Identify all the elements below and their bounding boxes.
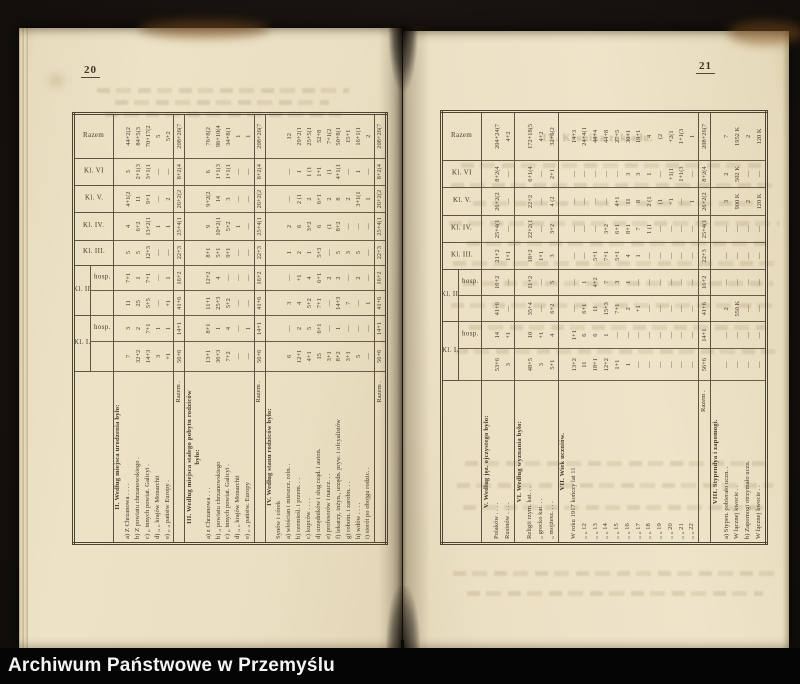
value-cell: — — [655, 269, 666, 295]
value-cell: +1 — [666, 188, 677, 215]
value-cell: — — [569, 269, 580, 295]
value-cell: — — [677, 243, 688, 269]
value-cell: — — [666, 296, 677, 322]
row-label: c) „ innych powiat. Galicyi . — [224, 372, 234, 544]
value-cell: 4+1(1 — [334, 158, 344, 185]
value-cell: — — [677, 296, 688, 322]
value-cell: — — [580, 160, 591, 187]
empty-cell — [265, 341, 275, 371]
value-cell: 6 — [314, 213, 324, 240]
value-cell: 8 — [633, 188, 644, 215]
value-cell: 70+17(2 — [143, 114, 153, 159]
value-cell: 7+1 — [123, 265, 133, 290]
value-cell: — — [743, 322, 754, 348]
empty-cell — [711, 215, 722, 242]
value-cell: 208+26(7 — [374, 114, 386, 159]
table-row: Razem .56+614+141+616+222+325+4(126+2(28… — [254, 114, 265, 544]
value-cell: 1 — [284, 240, 294, 265]
value-cell: — — [666, 269, 677, 295]
value-cell: 5 — [133, 240, 143, 265]
column-header-label: Razem — [83, 133, 104, 140]
value-cell: — — [754, 322, 767, 348]
column-header-label: Kl. VI — [84, 168, 104, 175]
value-cell: 27+5 — [612, 112, 623, 161]
value-cell: +1 — [163, 341, 173, 371]
value-cell: (1 — [324, 213, 334, 240]
bleed-through-line — [115, 100, 329, 105]
book-page-left: 20 Kl. I.Kl. II.Kl. III.Kl. IV.Kl. V.Kl.… — [19, 28, 402, 648]
value-cell: 26+2(2 — [492, 188, 503, 215]
class-column-header: Razem — [442, 112, 482, 161]
value-cell: +1 — [294, 265, 304, 290]
value-cell: — — [754, 243, 767, 269]
empty-cell — [482, 348, 493, 381]
column-header-label: Kl. IV. — [83, 223, 104, 230]
value-cell — [275, 240, 284, 265]
value-cell: 5 — [354, 341, 364, 371]
value-cell: 1 — [163, 265, 173, 290]
empty-cell — [482, 215, 493, 242]
empty-cell — [185, 341, 204, 371]
empty-cell — [114, 240, 124, 265]
value-cell: 41+6 — [699, 296, 711, 322]
value-cell: — — [569, 160, 580, 187]
section-title-row: VII. Wiek uczniów. — [558, 112, 569, 544]
empty-cell — [185, 316, 204, 341]
value-cell: — — [721, 322, 732, 348]
value-cell: — — [536, 269, 547, 295]
value-cell: — — [677, 188, 688, 215]
section-title-row: II. Według miejsca urodzenia było: — [114, 114, 124, 544]
empty-cell — [711, 296, 722, 322]
value-cell: — — [580, 243, 591, 269]
value-cell: 35+4 — [525, 296, 536, 322]
section-title-row: VI. Według wyznania było: — [514, 112, 525, 544]
value-cell: — — [344, 316, 354, 341]
value-cell: 11+2 — [525, 269, 536, 295]
value-cell: (2 — [655, 112, 666, 161]
value-cell: — — [666, 322, 677, 348]
table-row: a) Stypen. pobierało uczn. .——2———327 — [721, 112, 732, 544]
value-cell: — — [503, 269, 514, 295]
value-cell: 1 — [687, 188, 698, 215]
value-cell: 1 — [294, 158, 304, 185]
value-cell: 14+3 — [334, 291, 344, 316]
table-row: e) „ „ państw. Europy—1——————1 — [244, 114, 254, 544]
value-cell: 2 — [743, 112, 754, 161]
empty-cell — [482, 296, 493, 322]
bleed-through-line — [97, 88, 349, 93]
value-cell: 12+1 — [294, 341, 304, 371]
value-cell: — — [569, 188, 580, 215]
column-header-label: Kl. II. — [443, 292, 458, 299]
value-cell: 25+4(1 — [174, 213, 185, 240]
value-cell: 18+1 — [590, 348, 601, 381]
value-cell: — — [234, 316, 244, 341]
table-row: g) robotn. i zarobn. . .3+1—7—3—2—15+1 — [344, 114, 354, 544]
table-row: Religii rzym. kat. . .48+51035+411+218+2… — [525, 112, 536, 544]
value-cell: — — [503, 215, 514, 242]
value-cell: 44+2(2 — [123, 114, 133, 159]
value-cell: — — [677, 269, 688, 295]
column-header-textwrap: Kl. IV. — [444, 216, 481, 242]
row-label: d) urzędników i sług rząd. i auton. — [314, 372, 324, 544]
value-cell: — — [601, 188, 612, 215]
value-cell: 4+2 — [503, 112, 514, 161]
value-cell: 1 — [214, 316, 224, 341]
value-cell: 26+2(2 — [374, 185, 386, 212]
section-title: III. Według miejsca stałego pobytu rodzi… — [185, 372, 204, 544]
section-title: II. Według miejsca urodzenia było: — [114, 372, 124, 544]
value-cell: 22+2 — [525, 188, 536, 215]
row-label: „ mojżesz. . . . — [547, 381, 558, 544]
value-cell: — — [612, 322, 623, 348]
value-cell: — — [284, 185, 294, 212]
value-cell: — — [677, 348, 688, 381]
table-row: „ „ 17——+1—178319+1 — [633, 112, 644, 544]
value-cell: 8+1 — [204, 240, 214, 265]
value-cell: 204+24(7 — [492, 112, 503, 161]
stain-decor — [139, 20, 269, 38]
column-header-textwrap: Kl. I. — [443, 322, 458, 380]
row-label: Rusinów . . . . — [503, 381, 514, 544]
empty-cell — [265, 240, 275, 265]
row-label: „ „ 22 — [687, 381, 698, 544]
value-cell: — — [536, 296, 547, 322]
value-cell: 16+2 — [174, 265, 185, 290]
column-header-textwrap — [92, 291, 112, 315]
value-cell: 4 — [644, 112, 655, 161]
value-cell: — — [754, 269, 767, 295]
value-cell: 1 — [580, 269, 591, 295]
empty-cell — [482, 243, 493, 269]
section-title-line: VIII. Stypendya i zapomogi. — [712, 381, 721, 542]
row-label: d) „ „ krajów Monarchii — [153, 372, 163, 544]
column-header-textwrap: Kl. III. — [76, 241, 113, 265]
value-cell: 2 — [623, 296, 634, 322]
value-cell: 3 — [123, 158, 133, 185]
value-cell: — — [666, 348, 677, 381]
value-cell: 5+1 — [590, 243, 601, 269]
value-cell: 2 — [284, 213, 294, 240]
value-cell: — — [354, 316, 364, 341]
section-title-row: V. Według jęz. ojczystego było: — [482, 112, 493, 544]
value-cell: — — [153, 265, 163, 290]
empty-cell — [514, 348, 525, 381]
value-cell: — — [590, 160, 601, 187]
row-label: b) Z powiatu chrzanowskiego . — [133, 372, 143, 544]
value-cell: 8+1 — [204, 316, 214, 341]
column-header-textwrap: Razem — [76, 115, 113, 158]
value-cell: — — [677, 215, 688, 242]
empty-cell — [558, 215, 569, 242]
value-cell: — — [666, 243, 677, 269]
value-cell: — — [364, 341, 374, 371]
empty-cell — [711, 160, 722, 187]
value-cell: 1 — [334, 316, 344, 341]
value-cell: 5 — [153, 114, 163, 159]
value-cell: 22+3 — [254, 240, 265, 265]
table-row: Razem .56+614+141+616+222+325+4(126+2(28… — [174, 114, 185, 544]
value-cell: — — [284, 316, 294, 341]
value-cell: — — [153, 185, 163, 212]
empty-cell — [185, 158, 204, 185]
value-cell: 3 — [633, 160, 644, 187]
value-cell: +1 — [163, 291, 173, 316]
value-cell: 52+8 — [314, 114, 324, 159]
value-cell: 4+1 — [304, 341, 314, 371]
section-title-line: IV. Według stanu rodziców było: — [266, 372, 275, 542]
bleed-through-line — [453, 571, 777, 576]
empty-cell — [114, 316, 124, 341]
class-subcolumn-header: hosp. — [91, 316, 114, 341]
empty-cell — [558, 322, 569, 348]
empty-cell — [711, 322, 722, 348]
value-cell: 6+2 — [133, 213, 143, 240]
row-label: „ „ 20 — [666, 381, 677, 544]
value-cell: — — [743, 269, 754, 295]
value-cell: — — [244, 265, 254, 290]
value-cell: — — [364, 316, 374, 341]
value-cell: 4 (2 — [547, 188, 558, 215]
column-header-label: hosp. — [462, 279, 479, 286]
empty-cell — [482, 269, 493, 295]
stub-header — [442, 381, 482, 544]
value-cell: 25+4(1 — [254, 213, 265, 240]
value-cell: 1+1(3 — [214, 158, 224, 185]
table-row: d) „ „ krajów Monarchii—————1——1 — [234, 114, 244, 544]
value-cell: 56+6 — [174, 341, 185, 371]
value-cell: — — [743, 160, 754, 187]
table-row: „ mojżesz. . . .5+146+2533+24 (22+132+6(… — [547, 112, 558, 544]
stain-decor — [728, 21, 800, 45]
value-cell: 9+2(2 — [204, 185, 214, 212]
row-label: c) kupców . . . . — [304, 372, 314, 544]
value-cell: 1 — [644, 160, 655, 187]
column-header-textwrap: Kl. IV. — [76, 213, 113, 239]
value-cell: 24+4(1 — [580, 112, 591, 161]
table-row: „ „ 151+1—7+135+16+14+1—27+5 — [612, 112, 623, 544]
empty-cell — [558, 112, 569, 161]
value-cell: 8+2(4 — [174, 158, 185, 185]
empty-cell — [482, 188, 493, 215]
column-header-textwrap — [460, 349, 480, 381]
value-cell: — — [655, 348, 666, 381]
value-cell: 41+6 — [174, 291, 185, 316]
value-cell: 8+2(4 — [492, 160, 503, 187]
empty-cell — [558, 243, 569, 269]
value-cell: — — [644, 296, 655, 322]
class-subcolumn-header — [91, 341, 114, 371]
value-cell: — — [234, 158, 244, 185]
value-cell: 56+6 — [254, 341, 265, 371]
value-cell: 14 — [492, 322, 503, 348]
value-cell: — — [234, 240, 244, 265]
row-label: Polaków . . . . — [492, 381, 503, 544]
column-header-textwrap: Razem — [444, 113, 481, 160]
value-cell: 4 — [224, 316, 234, 341]
value-cell: 11 — [580, 348, 591, 381]
column-header-label: Kl. V. — [453, 198, 471, 205]
row-label: e) „ „ państw Europy . — [163, 372, 173, 544]
value-cell: 15+3 — [601, 296, 612, 322]
value-cell: 3+1 — [344, 341, 354, 371]
value-cell: 7+1 — [143, 316, 153, 341]
value-cell: 26+2(2 — [174, 185, 185, 212]
row-label: Religii rzym. kat. . . — [525, 381, 536, 544]
section-title-line: VII. Wiek uczniów. — [559, 381, 568, 542]
value-cell — [275, 158, 284, 185]
value-cell: 44+4 — [590, 112, 601, 161]
value-cell: — — [344, 213, 354, 240]
row-label: Razem . — [174, 372, 185, 544]
value-cell: 2 — [364, 114, 374, 159]
value-cell: — — [244, 158, 254, 185]
value-cell: 50+8(1 — [334, 114, 344, 159]
empty-cell — [482, 322, 493, 348]
value-cell: — — [503, 296, 514, 322]
value-cell — [275, 114, 284, 159]
value-cell: — — [364, 265, 374, 290]
value-cell: — — [153, 291, 163, 316]
empty-cell — [265, 185, 275, 212]
value-cell: 16+1(1 — [354, 114, 364, 159]
value-cell: 1 — [153, 213, 163, 240]
value-cell: 9 — [204, 213, 214, 240]
value-cell: 1+1 — [569, 322, 580, 348]
value-cell: 5 — [123, 240, 133, 265]
value-cell: 21+2 — [492, 243, 503, 269]
table-row: a) Z Chrzanowa . . . .73117+1544+1(2344+… — [123, 114, 133, 544]
value-cell: 13+2(1 — [143, 213, 153, 240]
section-title-line: II. Według miejsca urodzenia było: — [114, 372, 123, 542]
class-subcolumn-header — [91, 291, 114, 316]
empty-cell — [514, 269, 525, 295]
value-cell: 13+1 — [204, 341, 214, 371]
section-title-line: III. Według miejsca stałego pobytu rodzi… — [186, 372, 195, 542]
value-cell: 1 — [623, 269, 634, 295]
table-row: a) włościan i mieszcz. roln. .6—3—12——12 — [284, 114, 294, 544]
table-row: „ „ 19——————(1—(2 — [655, 112, 666, 544]
empty-cell — [514, 322, 525, 348]
row-label: a) włościan i mieszcz. roln. . — [284, 372, 294, 544]
value-cell: 4 — [304, 265, 314, 290]
value-cell: — — [687, 322, 698, 348]
header-row-groups: Kl. I.Kl. II.Kl. III.Kl. IV.Kl. V.Kl. VI… — [442, 112, 459, 544]
value-cell: 5+2 — [163, 114, 173, 159]
value-cell: 30+1 — [623, 112, 634, 161]
value-cell: — — [244, 341, 254, 371]
value-cell: 3+1(1 — [143, 158, 153, 185]
value-cell: 3 — [503, 348, 514, 381]
value-cell: 2+1 — [547, 160, 558, 187]
empty-cell — [185, 291, 204, 316]
value-cell: 502 K — [732, 160, 743, 187]
value-cell: 4+1(2 — [123, 185, 133, 212]
class-group-header: Kl. II. — [74, 265, 91, 316]
row-label: a) z Chrzanowa . . . — [204, 372, 214, 544]
table-row: „ „ 1412+2115+377+13+2——44+8 — [601, 112, 612, 544]
empty-cell — [514, 160, 525, 187]
value-cell: 1 — [163, 316, 173, 341]
column-header-label: Razem — [451, 133, 472, 140]
empty-cell — [185, 213, 204, 240]
row-label: W roku 1917 kończy lat 11 — [569, 381, 580, 544]
value-cell: — — [677, 322, 688, 348]
value-cell: 550 K — [732, 296, 743, 322]
table-row: „ „ 20——————+1+1(1+2(1 — [666, 112, 677, 544]
value-cell: 13+2 — [569, 348, 580, 381]
row-label: „ „ 15 — [612, 381, 623, 544]
value-cell: 10 — [525, 322, 536, 348]
value-cell: — — [644, 348, 655, 381]
value-cell: 2 (1 — [644, 188, 655, 215]
empty-cell — [514, 188, 525, 215]
class-column-header: Razem — [74, 114, 114, 159]
row-label: a) Stypen. pobierało uczn. . — [721, 381, 732, 544]
table-row: h) wdów . . . .5——25—3+1(1116+1(1 — [354, 114, 364, 544]
column-header-textwrap: Kl. VI — [444, 161, 481, 187]
value-cell: 7 — [633, 215, 644, 242]
value-cell: 44+8 — [601, 112, 612, 161]
column-header-label: hosp. — [94, 275, 111, 282]
empty-cell — [185, 240, 204, 265]
column-header-textwrap: Kl. I. — [75, 316, 90, 371]
class-subcolumn-header: hosp. — [91, 265, 114, 290]
row-label: „ grecko kat. . . — [536, 381, 547, 544]
value-cell: — — [687, 296, 698, 322]
value-cell: 25+4(1 — [374, 213, 386, 240]
value-cell: 2 — [294, 240, 304, 265]
value-cell: 22+2(1 — [525, 215, 536, 242]
value-cell: — — [732, 348, 743, 381]
value-cell: +1 — [633, 296, 644, 322]
value-cell: — — [655, 322, 666, 348]
value-cell: — — [687, 160, 698, 187]
value-cell: 14+1 — [174, 316, 185, 341]
value-cell: +1 — [536, 322, 547, 348]
value-cell: 7 — [123, 341, 133, 371]
value-cell: 1+1 — [612, 348, 623, 381]
row-label: W łącznej kwocie . . — [754, 381, 767, 544]
value-cell: 6 — [590, 322, 601, 348]
value-cell: 1 — [244, 114, 254, 159]
value-cell: — — [721, 269, 732, 295]
value-cell: 172+18(5 — [525, 112, 536, 161]
value-cell: — — [644, 243, 655, 269]
value-cell: 1 — [633, 243, 644, 269]
row-label: Razem . — [699, 381, 711, 544]
value-cell: +1(1 — [666, 160, 677, 187]
value-cell: 84+5(3 — [133, 114, 143, 159]
value-cell: 4 — [294, 291, 304, 316]
class-subcolumn-header: hosp. — [459, 322, 482, 348]
value-cell: 15 — [314, 341, 324, 371]
class-group-header: Kl. I. — [442, 322, 459, 381]
empty-cell — [514, 215, 525, 242]
value-cell: 25+5(1 — [304, 114, 314, 159]
class-column-header: Kl. VI — [442, 160, 482, 187]
value-cell: 5+1 — [612, 243, 623, 269]
value-cell: 3+2 — [547, 215, 558, 242]
value-cell: 8+2(4 — [254, 158, 265, 185]
value-cell: 12+2 — [601, 348, 612, 381]
class-column-header: Kl. VI — [74, 158, 114, 185]
column-header-textwrap: Kl. V. — [444, 188, 481, 214]
empty-cell — [711, 188, 722, 215]
value-cell: 2+1(3 — [133, 158, 143, 185]
value-cell: 1+1(1 — [224, 158, 234, 185]
